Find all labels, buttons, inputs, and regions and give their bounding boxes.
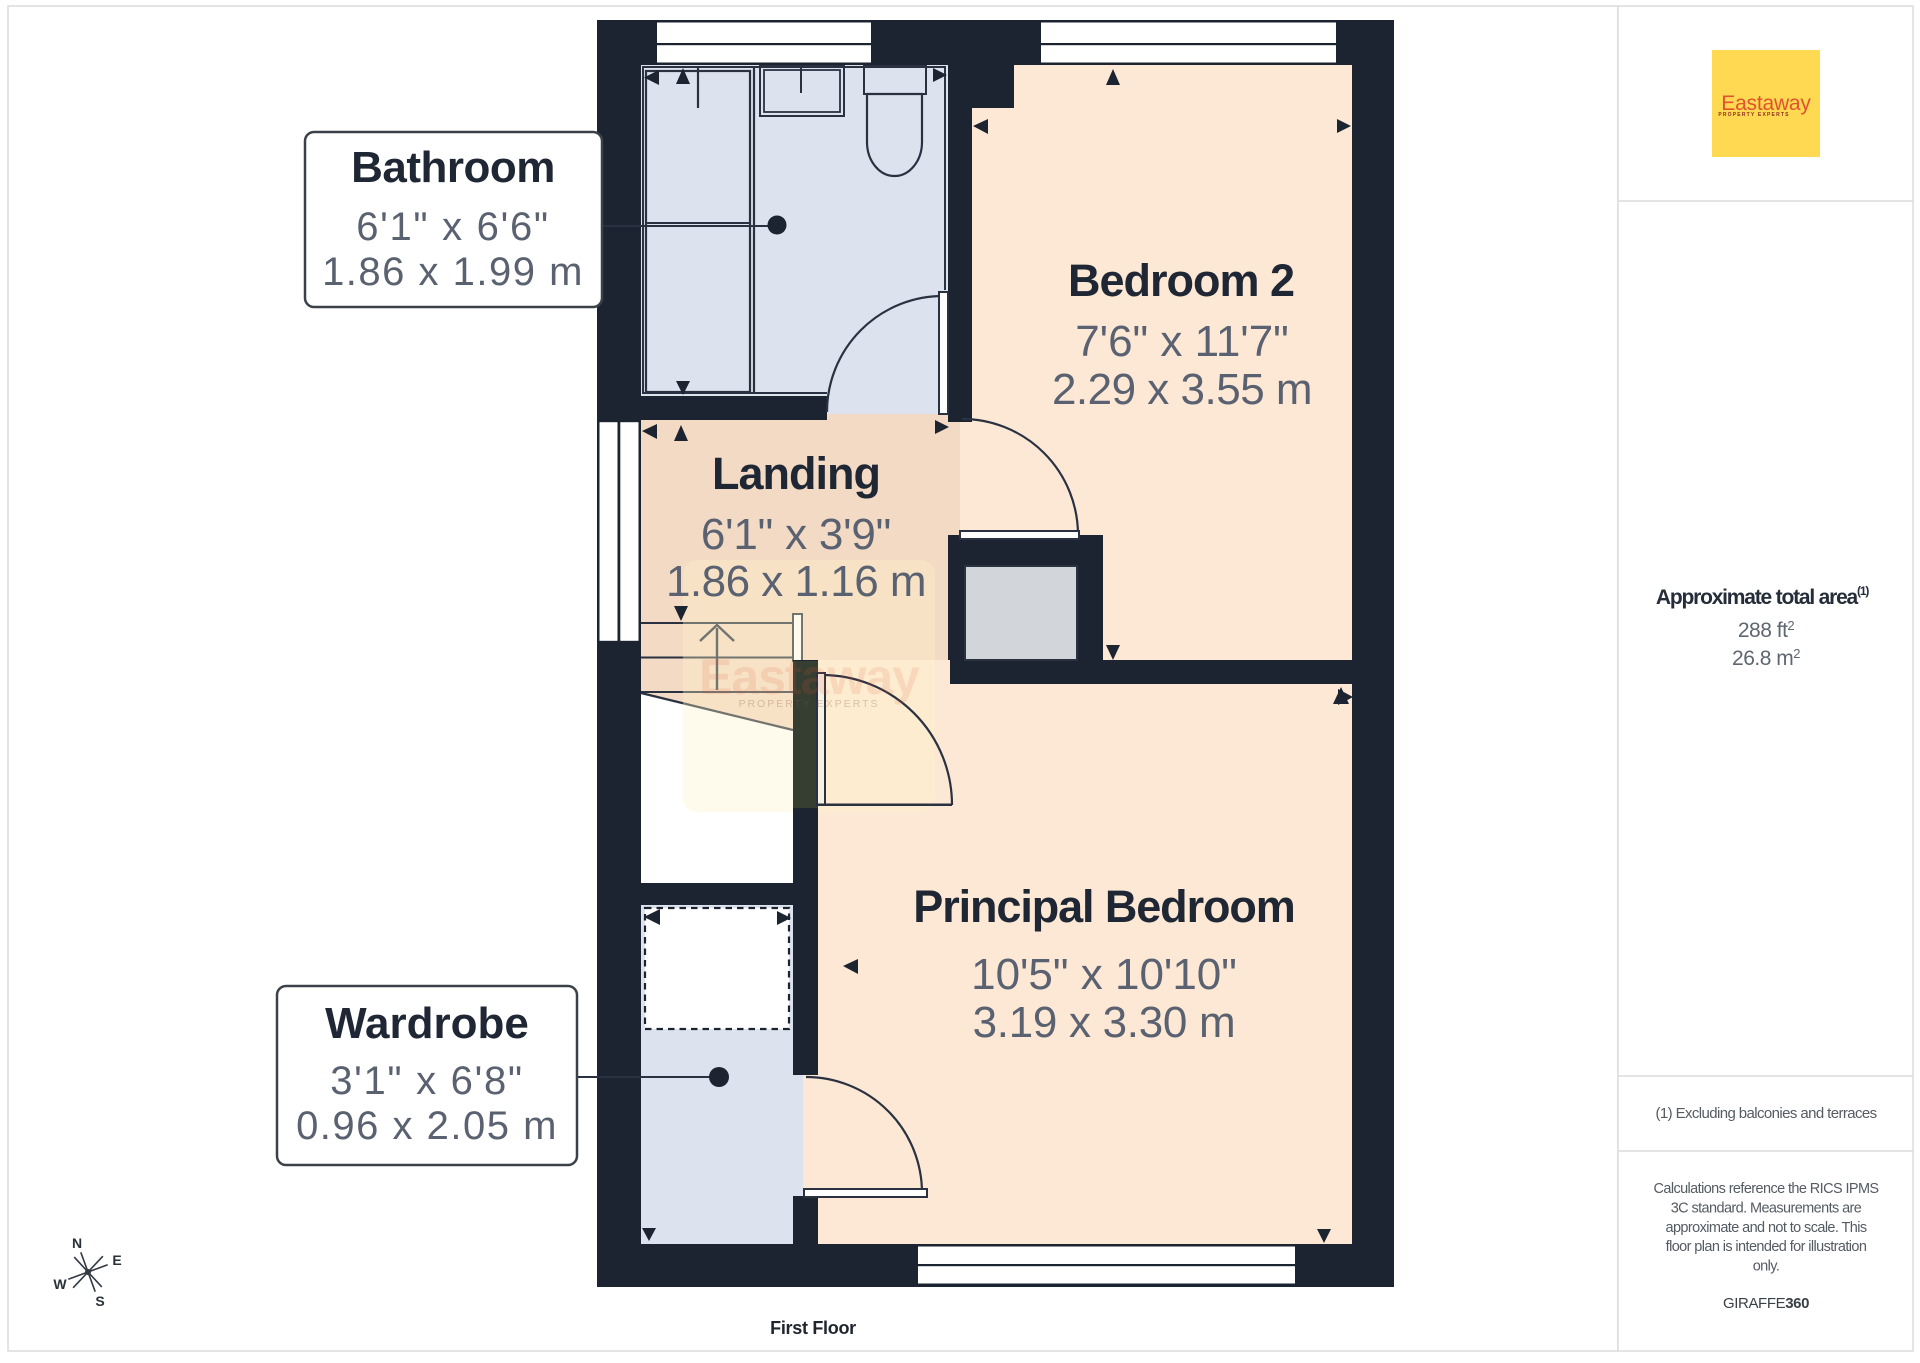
svg-text:6'1" x 6'6": 6'1" x 6'6": [356, 205, 550, 249]
svg-text:Wardrobe: Wardrobe: [325, 999, 529, 1048]
svg-text:N: N: [72, 1235, 82, 1251]
svg-text:6'1" x 3'9": 6'1" x 3'9": [701, 510, 891, 559]
svg-text:(1) Excluding balconies and te: (1) Excluding balconies and terraces: [1655, 1105, 1876, 1122]
svg-text:Approximate total area(1): Approximate total area(1): [1656, 584, 1869, 609]
svg-text:Landing: Landing: [712, 448, 880, 499]
svg-text:Eastaway: Eastaway: [699, 649, 920, 705]
svg-text:1.86 x 1.99 m: 1.86 x 1.99 m: [322, 250, 584, 294]
svg-text:3.19 x 3.30 m: 3.19 x 3.30 m: [973, 998, 1236, 1047]
svg-text:PROPERTY EXPERTS: PROPERTY EXPERTS: [738, 698, 879, 710]
svg-text:1.86 x 1.16 m: 1.86 x 1.16 m: [666, 557, 926, 606]
svg-text:2.29 x 3.55 m: 2.29 x 3.55 m: [1052, 365, 1312, 414]
svg-text:Bedroom 2: Bedroom 2: [1068, 255, 1294, 306]
svg-text:First Floor: First Floor: [770, 1318, 856, 1338]
svg-text:10'5" x 10'10": 10'5" x 10'10": [971, 950, 1237, 999]
svg-text:Principal Bedroom: Principal Bedroom: [913, 881, 1294, 932]
svg-text:only.: only.: [1753, 1259, 1780, 1275]
svg-text:approximate and not to scale.: approximate and not to scale. This: [1666, 1220, 1867, 1236]
svg-text:288 ft2: 288 ft2: [1738, 618, 1795, 642]
svg-text:PROPERTY EXPERTS: PROPERTY EXPERTS: [1718, 112, 1789, 118]
svg-text:floor plan is intended for ill: floor plan is intended for illustration: [1666, 1239, 1867, 1255]
svg-text:7'6" x 11'7": 7'6" x 11'7": [1075, 317, 1289, 366]
svg-text:E: E: [112, 1252, 121, 1268]
svg-text:Bathroom: Bathroom: [351, 143, 555, 192]
svg-text:S: S: [95, 1293, 104, 1309]
svg-text:W: W: [53, 1276, 67, 1292]
svg-text:3C standard. Measurements are: 3C standard. Measurements are: [1671, 1200, 1862, 1216]
svg-text:0.96 x 2.05 m: 0.96 x 2.05 m: [296, 1104, 558, 1148]
svg-text:Calculations reference the RIC: Calculations reference the RICS IPMS: [1653, 1181, 1878, 1197]
svg-text:3'1" x 6'8": 3'1" x 6'8": [330, 1059, 524, 1103]
svg-text:26.8 m2: 26.8 m2: [1732, 646, 1800, 670]
svg-text:GIRAFFE360: GIRAFFE360: [1723, 1295, 1809, 1312]
